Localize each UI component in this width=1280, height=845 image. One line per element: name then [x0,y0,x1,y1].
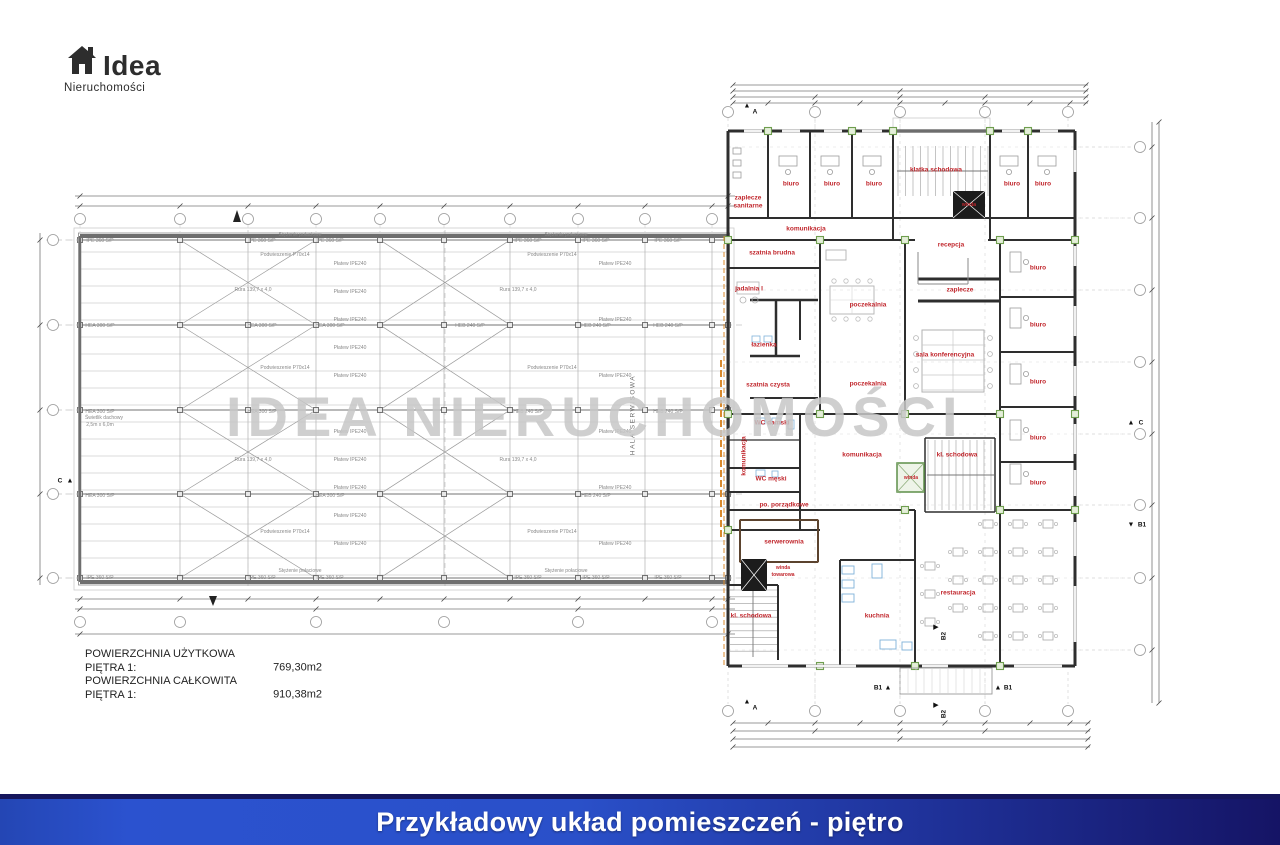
summary-row: POWIERZCHNIA UŻYTKOWA PIĘTRA 1: 769,30m2 [85,648,322,675]
house-icon [64,44,100,81]
banner-title: Przykładowy układ pomieszczeń - piętro [376,807,904,838]
brand-subtitle: Nieruchomości [64,82,161,94]
brand-name: Idea [103,51,161,81]
company-logo: Idea Nieruchomości [64,44,161,94]
summary-label: POWIERZCHNIA CAŁKOWITA PIĘTRA 1: [85,675,270,702]
area-summary: POWIERZCHNIA UŻYTKOWA PIĘTRA 1: 769,30m2… [85,648,322,702]
summary-value: 769,30m2 [273,662,322,674]
summary-row: POWIERZCHNIA CAŁKOWITA PIĘTRA 1: 910,38m… [85,675,322,702]
summary-value: 910,38m2 [273,689,322,701]
watermark-text: IDEA NIERUCHOMOŚCI [226,389,964,445]
floor-plan-sheet: IPE 360 S/PIPE 360 S/PIPE 360 S/PIPE 360… [0,0,1280,845]
summary-label: POWIERZCHNIA UŻYTKOWA PIĘTRA 1: [85,648,270,675]
title-banner: Przykładowy układ pomieszczeń - piętro [0,794,1280,845]
